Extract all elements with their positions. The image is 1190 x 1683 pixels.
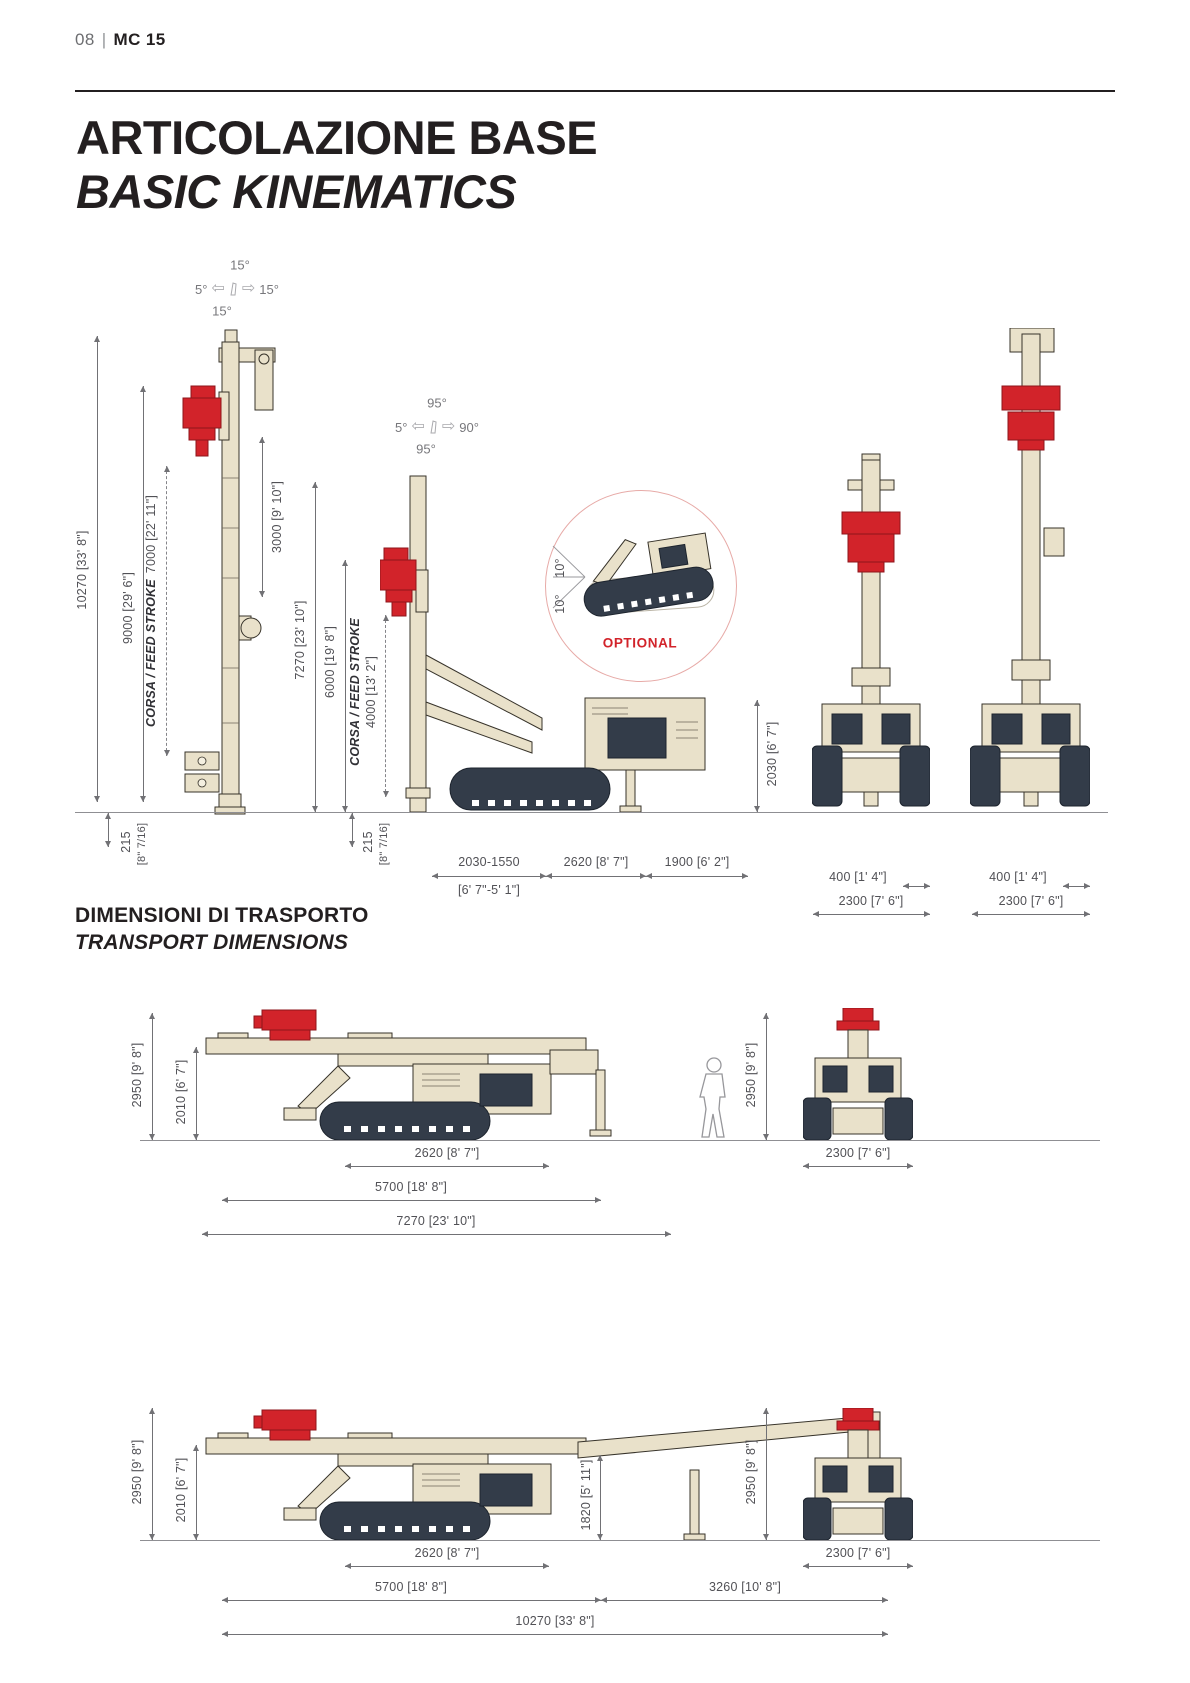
dim-overall-width: 2300 [7' 6"] [839,894,904,908]
dim-line-head-travel [262,437,263,597]
dim-line-track-width [1063,886,1090,887]
mast-swing-top-angle: 95° [427,396,447,411]
dim-body-height: 2030 [6' 7"] [765,722,779,787]
extension-line [196,1445,286,1446]
model-name: MC 15 [114,30,166,49]
dim-line-t1-track-length [345,1166,549,1167]
extension-line [222,1140,223,1204]
extension-line [600,1455,648,1456]
extension-line [166,756,232,757]
rig-front-view-mast-top [970,328,1090,812]
datasheet-page: 08|MC 15 ARTICOLAZIONE BASE BASIC KINEMA… [0,0,1190,1683]
dim-overall-width: 2300 [7' 6"] [999,894,1064,908]
extension-line [601,1540,602,1604]
mast-tilt-row: 5° ⇦ ⇨ 15° [195,281,279,297]
dim-t1-overall-height: 2950 [9' 8"] [130,1043,144,1108]
dim-line-total-height [97,336,98,802]
extension-line [97,336,217,337]
dim-line-feed-stroke-short [385,615,386,797]
dim-line-t2-overall-height [152,1408,153,1540]
ground-line [140,1540,1100,1541]
dim-line-t2-mast-height [600,1455,601,1540]
extension-line [1090,812,1091,918]
dim-line-t1-body-height [196,1047,197,1140]
dim-t2-total-length: 10270 [33' 8"] [515,1614,594,1628]
dim-line-body-height [757,700,758,812]
mast-tilt-right-angle: 15° [259,282,279,297]
dim-line-t2-body-height [196,1445,197,1540]
extension-line [766,1408,822,1409]
arrow-right-icon: ⇨ [442,419,455,435]
dim-line-mid-working-height [345,560,346,812]
mast-raised-side-view [175,328,287,816]
transport-side-view-1 [198,1008,678,1140]
dim-line-mid-total-height [315,482,316,812]
mast-tilt-left-angle: 5° [195,282,207,297]
extension-line [549,1140,550,1170]
dim-t2-overall-height: 2950 [9' 8"] [130,1440,144,1505]
extension-line [315,482,409,483]
transport-title-en: TRANSPORT DIMENSIONS [75,931,348,955]
dim-feed-stroke-short-label: CORSA / FEED STROKE [348,618,362,766]
dim-line-t2-track-length [345,1566,549,1567]
dim-t2-crawler-length: 5700 [18' 8"] [375,1580,447,1594]
dim-line-t2-crawler-length [222,1600,601,1601]
mast-swing-right-angle: 90° [459,420,479,435]
dim-track-width: 400 [1' 4"] [829,870,887,884]
extension-line [813,812,814,918]
dim-t2-track-length: 2620 [8' 7"] [415,1546,480,1560]
arrow-left-icon: ⇦ [411,419,424,435]
extension-line [748,812,749,882]
dim-t2-overall-width: 2300 [7' 6"] [826,1546,891,1560]
dim-total-height: 10270 [33' 8"] [75,530,89,609]
section-title-en: BASIC KINEMATICS [76,168,516,215]
mast-swing-left-angle: 5° [395,420,407,435]
dim-line-t1-overall-height [152,1013,153,1140]
extension-line [385,615,411,616]
dim-track-length: 2620 [8' 7"] [564,855,629,869]
dim-t1-total-length: 7270 [23' 10"] [396,1214,475,1228]
extension-line [930,812,931,918]
dim-t1-front-height: 2950 [9' 8"] [744,1043,758,1108]
dim-ground-clearance-sub: [8" 7/16] [136,823,148,865]
dim-feed-stroke-long: CORSA / FEED STROKE7000 [22' 11"] [144,495,158,727]
header-rule [75,90,1115,92]
extension-line [549,1540,550,1570]
dim-line-track-width [903,886,930,887]
dim-t2-body-height: 2010 [6' 7"] [174,1458,188,1523]
dim-head-travel: 3000 [9' 10"] [270,481,284,553]
dim-oscillation-left: 10° [553,558,567,578]
header-separator: | [102,30,107,49]
extension-line [202,1140,203,1238]
dim-t1-overall-width: 2300 [7' 6"] [826,1146,891,1160]
dim-feed-stroke-short: 4000 [13' 2"] [364,656,378,728]
extension-line [432,812,433,882]
dim-line-t1-crawler-length [222,1200,601,1201]
dim-front-reach: 2030-1550 [458,855,520,869]
dim-t2-mast-height: 1820 [5' 11"] [579,1459,593,1530]
extension-line [766,1013,822,1014]
extension-line [152,1408,262,1409]
dim-line-t2-total-length [222,1634,888,1635]
person-silhouette [694,1057,734,1140]
arrow-left-icon: ⇦ [211,281,224,297]
extension-line [196,1047,286,1048]
dim-line-front-reach [432,876,546,877]
dim-track-width: 400 [1' 4"] [989,870,1047,884]
mast-pictogram-icon [229,282,238,296]
transport-front-view-2 [803,1408,913,1540]
extension-line [166,466,232,467]
dim-line-track-length [546,876,646,877]
dim-line-t1-front-height [766,1013,767,1140]
dim-working-height: 9000 [29' 6"] [121,572,135,644]
mast-swing-row: 5° ⇦ ⇨ 90° [395,419,479,435]
extension-line [712,700,757,701]
dim-line-feed-stroke-long [166,466,167,756]
mast-tilt-top-angle: 15° [230,258,250,273]
dim-line-ground-clearance [352,813,353,847]
dim-ground-clearance: 215 [119,831,133,852]
dim-line-overall-width [813,914,930,915]
dim-mid-total-height: 7270 [23' 10"] [293,600,307,679]
extension-line [222,1540,223,1638]
dim-line-t2-overall-width [803,1566,913,1567]
dim-line-overall-width [972,914,1090,915]
dim-t2-front-height: 2950 [9' 8"] [744,1440,758,1505]
mast-pictogram-icon [429,420,438,434]
page-header: 08|MC 15 [75,30,166,50]
dim-line-t1-total-length [202,1234,671,1235]
extension-line [646,812,647,882]
arrow-right-icon: ⇨ [242,281,255,297]
mast-swing-bottom-angle: 95° [416,442,436,457]
dim-rear-length: 1900 [6' 2"] [665,855,730,869]
extension-line [546,812,547,882]
rig-front-view-mast-mid [812,452,930,812]
optional-label: OPTIONAL [603,636,678,651]
dim-ground-clearance-sub: [8" 7/16] [378,823,390,865]
dim-t1-body-height: 2010 [6' 7"] [174,1060,188,1125]
ground-line [75,812,1108,813]
oscillating-crawler-drawing [557,503,734,647]
dim-line-t2-mast-overhang [601,1600,888,1601]
dim-t2-mast-overhang: 3260 [10' 8"] [709,1580,781,1594]
dim-oscillation-right: 10° [553,594,567,614]
extension-line [239,597,265,598]
section-title-it: ARTICOLAZIONE BASE [76,114,597,161]
extension-line [972,812,973,918]
dim-front-reach-sub: [6' 7"-5' 1"] [458,883,520,897]
dim-line-rear-length [646,876,748,877]
dim-ground-clearance: 215 [361,831,375,852]
dim-line-ground-clearance [108,813,109,847]
mast-tilt-bottom-angle: 15° [212,304,232,319]
page-number: 08 [75,30,95,49]
dim-line-t1-overall-width [803,1166,913,1167]
extension-line [601,1140,602,1204]
transport-title-it: DIMENSIONI DI TRASPORTO [75,904,369,928]
dim-mid-working-height: 6000 [19' 8"] [323,626,337,698]
transport-side-view-2 [198,1400,898,1542]
transport-front-view-1 [803,1008,913,1140]
dim-t1-track-length: 2620 [8' 7"] [415,1146,480,1160]
extension-line [345,560,401,561]
ground-line [140,1140,1100,1141]
dim-line-t2-front-height [766,1408,767,1540]
extension-line [671,1140,672,1238]
extension-line [152,1013,262,1014]
dim-t1-crawler-length: 5700 [18' 8"] [375,1180,447,1194]
extension-line [143,386,235,387]
